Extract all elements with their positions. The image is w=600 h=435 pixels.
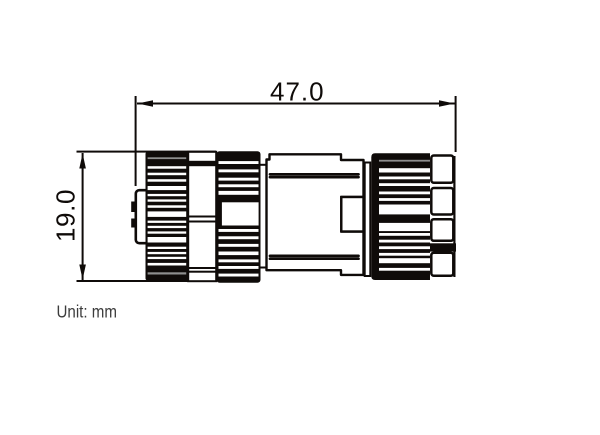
svg-text:47.0: 47.0 xyxy=(270,77,325,107)
svg-text:19.0: 19.0 xyxy=(51,189,81,242)
svg-text:Unit: mm: Unit: mm xyxy=(57,301,117,322)
